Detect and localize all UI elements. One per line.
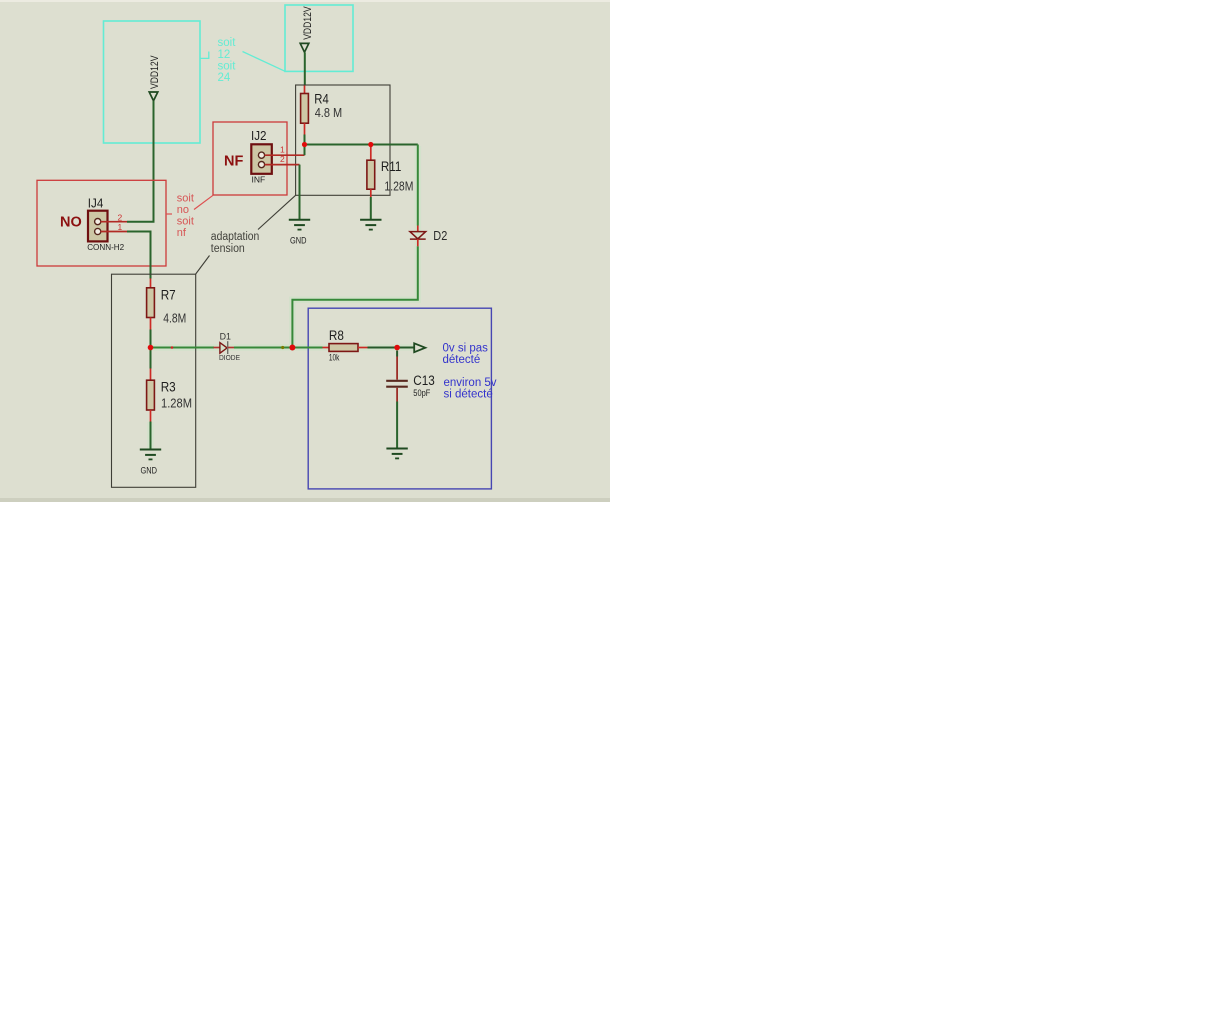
- svg-text:R8: R8: [329, 328, 344, 343]
- svg-text:soit: soit: [177, 216, 194, 228]
- svg-text:NF: NF: [224, 154, 243, 170]
- svg-text:VDD12V: VDD12V: [149, 55, 161, 89]
- svg-text:CONN-H2: CONN-H2: [87, 242, 124, 252]
- svg-text:D1: D1: [220, 332, 231, 342]
- svg-text:si détecté: si détecté: [444, 389, 493, 401]
- svg-text:soit: soit: [218, 37, 237, 49]
- svg-text:détecté: détecté: [443, 354, 481, 366]
- svg-text:GND: GND: [290, 235, 307, 246]
- svg-text:environ 5v: environ 5v: [444, 377, 497, 389]
- svg-text:10k: 10k: [329, 352, 340, 363]
- svg-text:no: no: [177, 204, 189, 216]
- svg-text:50pF: 50pF: [413, 388, 430, 399]
- svg-text:R11: R11: [381, 159, 402, 174]
- svg-text:12: 12: [218, 49, 231, 61]
- svg-text:1.28M: 1.28M: [161, 396, 192, 411]
- svg-text:adaptation: adaptation: [211, 231, 259, 243]
- svg-text:1: 1: [280, 145, 285, 155]
- svg-text:soit: soit: [177, 192, 194, 204]
- svg-text:nf: nf: [177, 227, 187, 239]
- svg-text:R7: R7: [161, 287, 176, 302]
- svg-text:DIODE: DIODE: [219, 355, 240, 362]
- svg-text:1: 1: [118, 222, 123, 232]
- svg-text:C13: C13: [413, 373, 435, 388]
- svg-text:D2: D2: [433, 229, 447, 243]
- svg-text:4.8M: 4.8M: [163, 311, 186, 326]
- svg-text:INF: INF: [252, 175, 266, 185]
- svg-text:R3: R3: [161, 379, 176, 394]
- svg-text:GND: GND: [141, 465, 158, 476]
- svg-text:IJ4: IJ4: [88, 196, 104, 210]
- svg-text:24: 24: [218, 72, 231, 84]
- svg-text:NO: NO: [60, 215, 82, 231]
- svg-text:VDD12V: VDD12V: [302, 6, 314, 40]
- svg-text:4.8 M: 4.8 M: [315, 105, 343, 120]
- svg-text:0v si pas: 0v si pas: [443, 343, 489, 355]
- svg-text:tension: tension: [211, 243, 245, 255]
- svg-text:soit: soit: [218, 60, 237, 72]
- svg-text:1.28M: 1.28M: [384, 179, 413, 194]
- svg-text:IJ2: IJ2: [251, 129, 267, 143]
